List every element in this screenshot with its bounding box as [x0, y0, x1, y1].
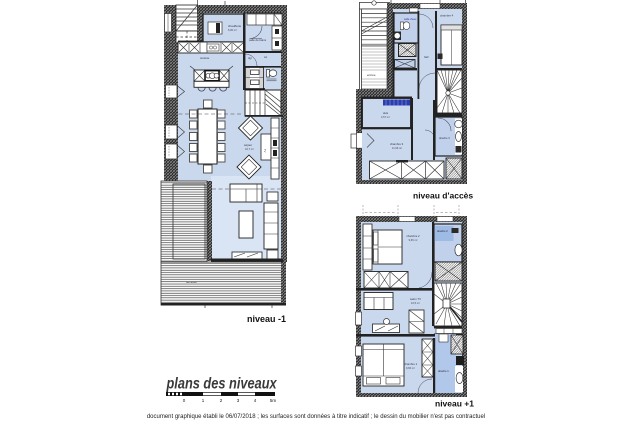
svg-text:douche 3: douche 3	[439, 136, 450, 140]
svg-text:chambre 2: chambre 2	[406, 234, 420, 238]
svg-text:plans des niveaux: plans des niveaux	[166, 375, 278, 393]
svg-text:11,96 m²: 11,96 m²	[392, 146, 402, 150]
svg-text:chaufferie: chaufferie	[228, 24, 241, 28]
svg-text:entrée: entrée	[367, 73, 376, 77]
svg-text:niveau +1: niveau +1	[435, 399, 474, 409]
svg-text:chambre 4: chambre 4	[440, 14, 454, 18]
svg-text:10,5 m²: 10,5 m²	[411, 301, 420, 305]
svg-text:chambre 3: chambre 3	[390, 142, 404, 146]
svg-text:4,57 m²: 4,57 m²	[381, 115, 390, 119]
svg-text:chambre 1: chambre 1	[404, 362, 418, 366]
svg-text:cuisine: cuisine	[200, 56, 210, 60]
svg-text:9,66 m²: 9,66 m²	[406, 366, 415, 370]
svg-text:salle d'eau: salle d'eau	[404, 17, 417, 21]
svg-text:terrasse: terrasse	[186, 280, 197, 284]
svg-text:42,7 m²: 42,7 m²	[245, 147, 254, 151]
svg-text:document graphique établi le 0: document graphique établi le 06/07/2018 …	[147, 414, 485, 420]
svg-text:9,66 m²: 9,66 m²	[409, 238, 418, 242]
svg-text:niveau d'accès: niveau d'accès	[413, 191, 473, 201]
svg-text:niveau -1: niveau -1	[247, 314, 286, 324]
svg-text:TV: TV	[263, 149, 267, 153]
svg-text:hall: hall	[424, 55, 429, 59]
svg-text:douche 1: douche 1	[438, 369, 449, 373]
svg-text:skis: skis	[383, 111, 389, 115]
svg-text:séjour: séjour	[244, 143, 252, 147]
svg-text:dgt: dgt	[248, 56, 252, 60]
svg-text:5m: 5m	[270, 398, 277, 403]
svg-text:douche 2: douche 2	[437, 229, 448, 233]
svg-text:salon TV: salon TV	[410, 297, 421, 301]
svg-text:5,00 m²: 5,00 m²	[228, 28, 237, 32]
